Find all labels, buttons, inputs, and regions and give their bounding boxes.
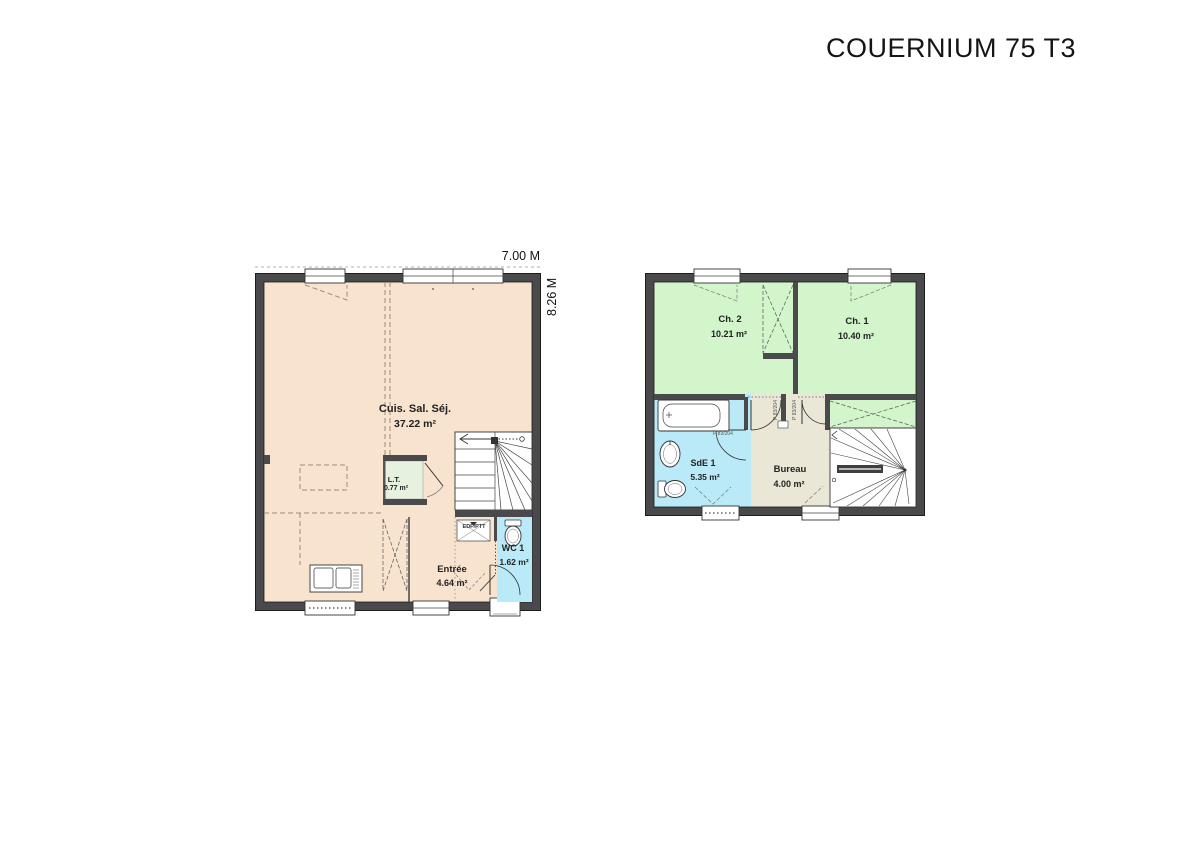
door-size-label: P 83/204 (774, 400, 779, 420)
room-label-ch2-name: Ch. 2 (718, 315, 741, 325)
door-frame (778, 421, 788, 428)
gf-window-top-left (305, 269, 345, 283)
uf-window-bureau (802, 506, 839, 520)
room-label-lt-name: L.T. (388, 476, 401, 484)
interior-wall (455, 510, 532, 517)
wall-stub (264, 455, 270, 464)
room-label-ch1-area: 10.40 m² (838, 332, 874, 341)
staircase-icon (455, 432, 532, 510)
room-label-entree-area: 4.64 m² (436, 579, 467, 588)
upper-floor-plan: Ch. 2 10.21 m² Ch. 1 10.40 m² SdE 1 5.35… (645, 273, 925, 516)
staircase-icon (830, 428, 916, 507)
uf-window-ch2 (694, 269, 740, 283)
room-label-ch2-area: 10.21 m² (711, 330, 747, 339)
room-label-bureau-name: Bureau (774, 465, 807, 475)
spot-mark (432, 288, 434, 290)
gf-window-kitchen (305, 601, 355, 615)
room-label-sde-name: SdE 1 (690, 459, 715, 468)
utility-box-label: EDF/PTT (463, 525, 486, 531)
toilet-icon (658, 481, 686, 498)
uf-window-sde (702, 506, 739, 520)
room-label-living-area: 37.22 m² (394, 419, 436, 430)
kitchen-sink-icon (310, 565, 362, 592)
spot-mark (472, 288, 474, 290)
room-label-wc-name: WC 1 (502, 544, 525, 553)
room-label-bureau-area: 4.00 m² (773, 480, 804, 489)
ground-floor-drawing-svg (255, 273, 541, 611)
gf-window-bay (403, 269, 503, 283)
dimension-height: 8.26 M (546, 278, 559, 316)
bureau-floor-fill (751, 394, 830, 507)
uf-window-ch1 (848, 269, 891, 283)
room-label-ch1-name: Ch. 1 (845, 317, 868, 327)
room-label-entree-name: Entrée (437, 565, 467, 575)
washbasin-icon (660, 441, 680, 467)
ground-floor-plan: Cuis. Sal. Séj. 37.22 m² L.T. 0.77 m² En… (255, 273, 541, 611)
floorplan-sheet: COUERNIUM 75 T3 (0, 0, 1200, 849)
gf-window-bottom (413, 601, 449, 615)
plan-title: COUERNIUM 75 T3 (826, 33, 1076, 64)
room-label-living-name: Cuis. Sal. Séj. (379, 404, 451, 415)
room-label-wc-area: 1.62 m² (499, 558, 528, 567)
dimension-width: 7.00 M (460, 250, 540, 263)
door-size-label: P 83/204 (713, 432, 733, 437)
room-label-sde-area: 5.35 m² (690, 473, 719, 482)
door-size-label: P 83/204 (793, 400, 798, 420)
room-label-lt-area: 0.77 m² (384, 485, 408, 492)
bathtub-icon (658, 400, 729, 431)
